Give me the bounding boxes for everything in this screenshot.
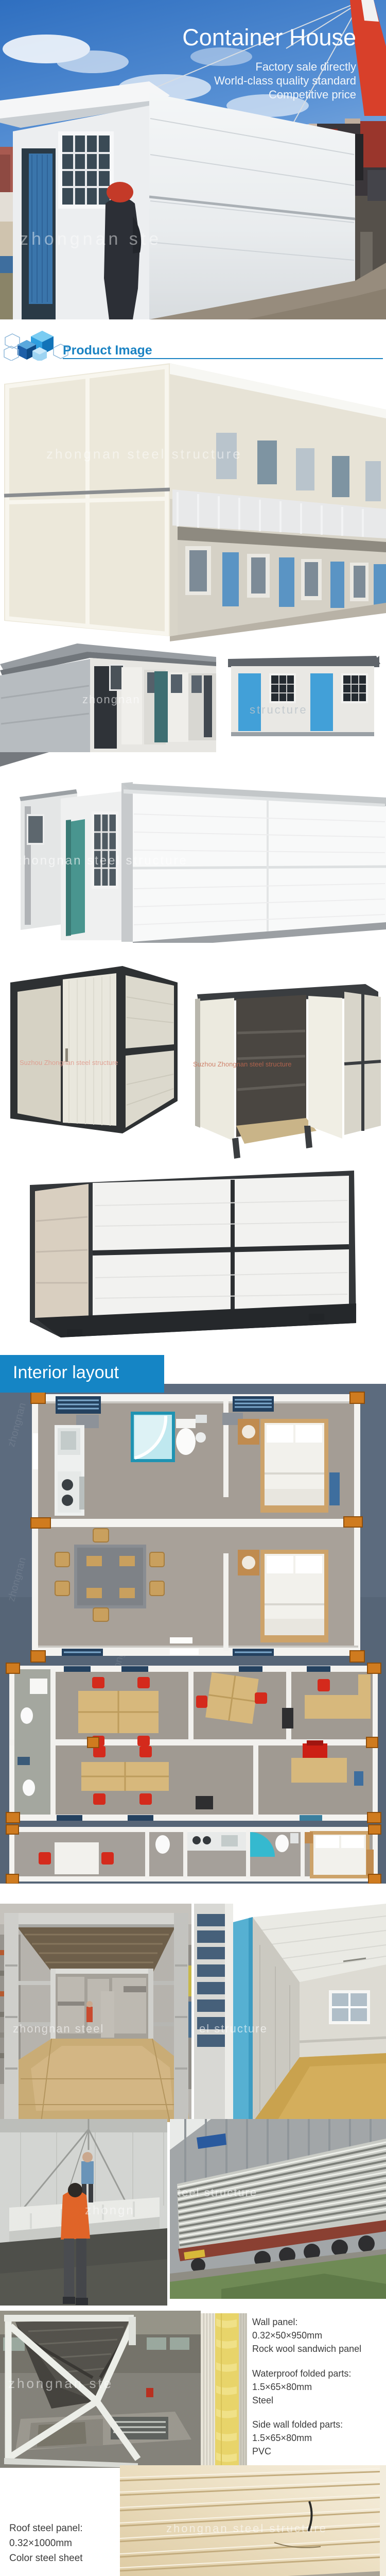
svg-text:Suzhou Zhongnan steel structur: Suzhou Zhongnan steel structure <box>193 1060 292 1068</box>
svg-text:zhongnan: zhongnan <box>82 693 141 706</box>
svg-text:Competitive price: Competitive price <box>269 88 356 101</box>
svg-text:zhongnan steel structure: zhongnan steel structure <box>15 854 188 868</box>
svg-text:Suzhou Zhongnan steel structur: Suzhou Zhongnan steel structure <box>20 1059 118 1066</box>
svg-text:zhongn: zhongn <box>85 2204 135 2217</box>
svg-text:zhongnan steel structure: zhongnan steel structure <box>166 2522 327 2535</box>
svg-text:el structure: el structure <box>199 2022 268 2035</box>
svg-text:Container House: Container House <box>182 24 356 50</box>
svg-text:zhongnan steel structure: zhongnan steel structure <box>46 446 242 462</box>
svg-text:Factory sale directly: Factory sale directly <box>255 60 356 73</box>
svg-text:zhongnan ste: zhongnan ste <box>8 2376 113 2391</box>
svg-text:World-class quality standard: World-class quality standard <box>214 74 356 87</box>
svg-text:zhongnan ste: zhongnan ste <box>20 229 162 249</box>
svg-text:teel structure: teel structure <box>178 2186 257 2199</box>
svg-text:zhongnan steel: zhongnan steel <box>13 2022 104 2035</box>
svg-text:structure: structure <box>250 703 308 716</box>
svg-text:Product Image: Product Image <box>63 343 152 358</box>
